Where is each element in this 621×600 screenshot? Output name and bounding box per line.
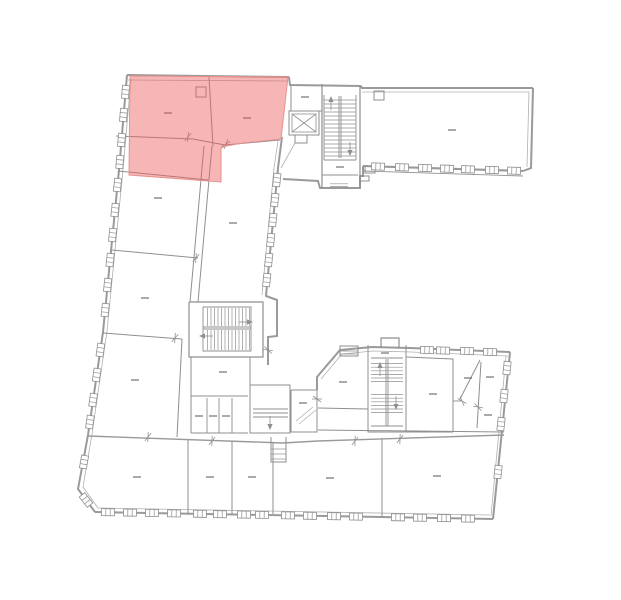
- wall: [189, 302, 263, 357]
- stairs-group: [208, 100, 404, 459]
- wall: [296, 407, 313, 421]
- shaft-box: [295, 135, 307, 143]
- window-icon: [371, 163, 384, 170]
- window-icon: [497, 417, 505, 431]
- window-icon: [116, 155, 124, 169]
- window-icon: [193, 510, 206, 517]
- window-icon: [281, 512, 294, 519]
- window-icon: [119, 108, 127, 122]
- wall: [103, 333, 182, 339]
- wall: [281, 143, 295, 168]
- window-icon: [485, 166, 498, 173]
- door-mark: [145, 432, 151, 442]
- window-icon: [271, 193, 279, 207]
- window-icon: [111, 203, 119, 217]
- arrows-group: [199, 96, 399, 430]
- stair-direction-arrow: [377, 362, 382, 376]
- stair-treads: [208, 308, 250, 326]
- window-icon: [500, 389, 508, 403]
- highlighted-area[interactable]: [129, 76, 288, 182]
- window-icon: [494, 465, 502, 479]
- window-icon: [395, 164, 408, 171]
- window-icon: [503, 361, 511, 375]
- window-icon: [391, 514, 404, 521]
- window-icon: [263, 273, 271, 287]
- wall: [460, 360, 480, 399]
- window-icon: [237, 511, 250, 518]
- window-icon: [507, 167, 520, 174]
- window-icon: [86, 415, 95, 429]
- window-icon: [413, 514, 426, 521]
- window-icon: [269, 213, 277, 227]
- window-icon: [440, 165, 453, 172]
- window-icon: [461, 166, 474, 173]
- window-icon: [265, 253, 273, 267]
- wall: [283, 166, 363, 188]
- wall: [362, 92, 529, 167]
- stair-treads: [330, 184, 348, 187]
- stair-treads: [324, 100, 356, 156]
- window-icon: [167, 510, 180, 517]
- elevator-shaft: [289, 111, 319, 135]
- window-icon: [79, 455, 88, 469]
- stair-treads: [208, 330, 250, 350]
- window-icon: [273, 173, 281, 187]
- window-icon: [121, 85, 129, 99]
- window-icon: [437, 514, 450, 521]
- window-icon: [108, 228, 116, 242]
- window-icon: [255, 511, 268, 518]
- wall: [88, 436, 283, 443]
- window-icon: [117, 133, 125, 147]
- window-icon: [418, 164, 431, 171]
- window-icon: [436, 347, 449, 354]
- window-icon: [460, 347, 473, 354]
- stair-direction-arrow: [267, 416, 272, 430]
- window-icon: [101, 303, 109, 317]
- window-icon: [420, 346, 433, 353]
- floor-plan: [0, 0, 621, 600]
- wall: [477, 362, 481, 428]
- floor-plan-canvas: [0, 0, 621, 600]
- window-icon: [96, 343, 105, 357]
- window-icon: [92, 368, 101, 382]
- stair-treads: [371, 364, 403, 382]
- stair-treads: [371, 395, 403, 413]
- window-icon: [483, 348, 496, 355]
- wall: [283, 435, 504, 443]
- window-icon: [303, 512, 316, 519]
- window-icon: [349, 513, 362, 520]
- window-icon: [101, 509, 114, 516]
- wall: [318, 408, 368, 409]
- window-icon: [113, 178, 121, 192]
- wall: [112, 250, 198, 258]
- door-mark: [352, 436, 358, 446]
- wall: [291, 86, 322, 111]
- window-icon: [145, 509, 158, 516]
- window-icon: [106, 253, 114, 267]
- wall: [299, 410, 316, 424]
- window-icon: [267, 233, 275, 247]
- window-icon: [103, 278, 111, 292]
- window-icon: [461, 515, 474, 522]
- window-icon: [89, 393, 98, 407]
- window-icon: [123, 509, 136, 516]
- wall: [361, 86, 533, 88]
- wall: [289, 77, 361, 86]
- wall: [177, 339, 182, 437]
- window-icon: [327, 513, 340, 520]
- window-icon: [213, 511, 226, 518]
